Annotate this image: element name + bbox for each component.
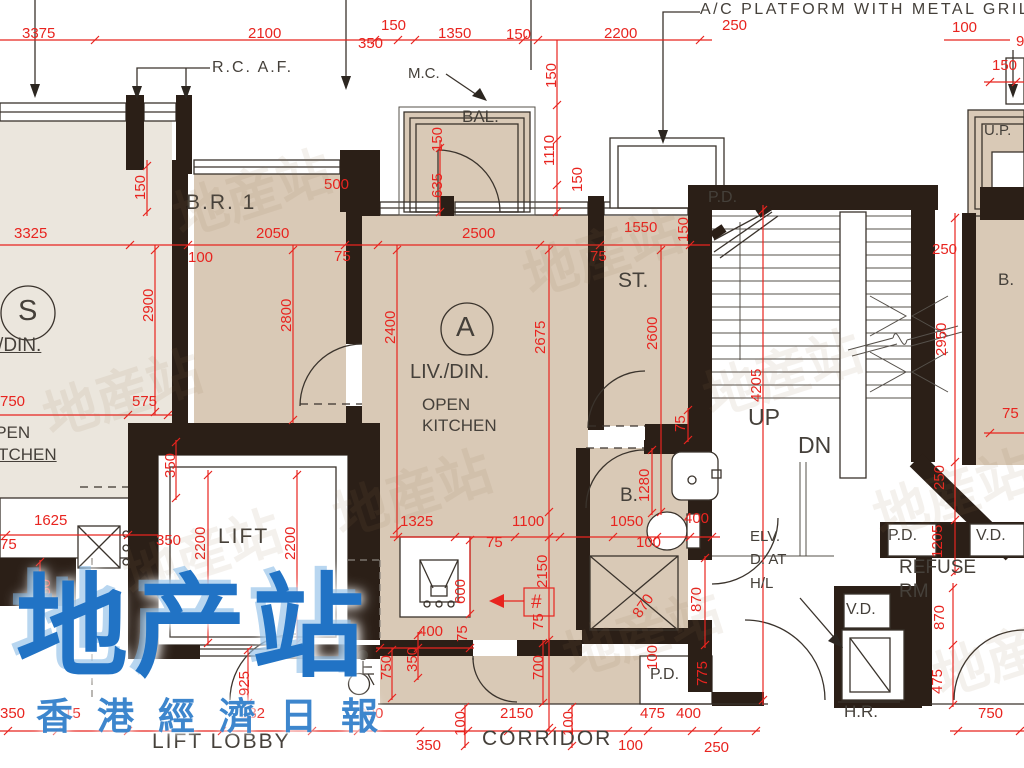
pd-duct-hatch xyxy=(712,206,778,258)
basin-icon xyxy=(672,452,721,500)
toilet-icon xyxy=(647,512,700,550)
watermark-logo: 地产站 xyxy=(16,572,370,684)
watermark-subtitle: 香港經濟日報 xyxy=(36,698,402,735)
hob-icon xyxy=(420,560,458,607)
